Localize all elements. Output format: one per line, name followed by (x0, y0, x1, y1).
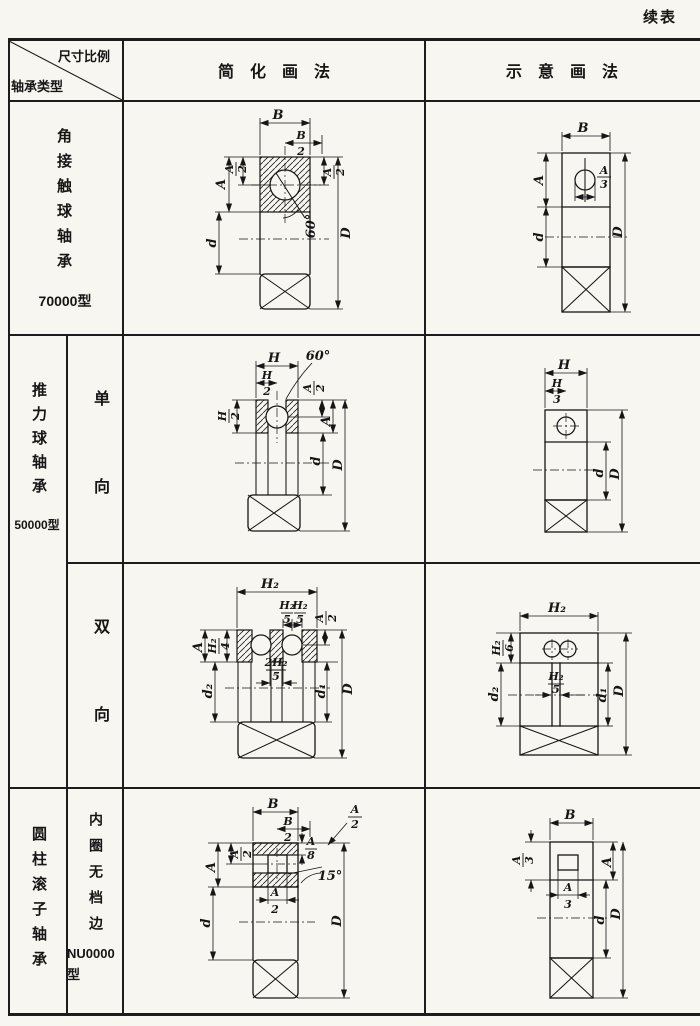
row2-sub-single-label: 单向 (87, 390, 111, 566)
dim-H26: H₂ 6 (490, 640, 516, 657)
dim-angle: 60° (304, 214, 319, 239)
dim-mid-num: 2H₂ (264, 656, 288, 669)
dim-A2: A 2 (301, 381, 327, 395)
dim-d: d (205, 238, 220, 247)
dim-A: A (214, 179, 229, 191)
row2-sub-double-label: 双向 (87, 618, 111, 794)
dim-B: B (564, 808, 576, 823)
row1-type-label: 角接触球轴承 (53, 128, 74, 278)
dim-A8-den: 8 (307, 849, 315, 862)
dim-B: B (267, 797, 279, 812)
row3-model-label: NU0000型 (67, 944, 123, 986)
subcolumn-divider (66, 335, 68, 1014)
dim-B2-den: 2 (296, 145, 305, 158)
cylindrical-roller-simplified-drawing: B B 2 A 8 A 2 15° A A 2 A 2 (125, 788, 425, 1014)
row2-type-label: 推力球轴承 (28, 382, 49, 502)
svg-text:H₂: H₂ (206, 638, 219, 654)
dim-d2: d₂ (201, 683, 216, 698)
dimensions: B A 3 A A 3 d D (510, 808, 628, 998)
ball-circle-2 (282, 635, 302, 655)
ball-circle-1 (251, 635, 271, 655)
dim-B2-num: B (282, 815, 292, 828)
dim-D: D (611, 226, 626, 239)
dim-D: D (608, 468, 623, 481)
svg-text:2: 2 (334, 168, 347, 177)
dim-A8-num: A (306, 835, 316, 848)
dim-D: D (609, 908, 624, 921)
dim-D: D (612, 685, 627, 698)
scanned-handbook-page: { "page": { "continued": "续表" }, "header… (0, 0, 700, 1026)
svg-text:H₂: H₂ (490, 640, 503, 656)
dim-H: H (267, 351, 281, 366)
dim-H25b-num: H₂ (291, 599, 307, 612)
dimensions: B A 3 A d D (532, 121, 631, 312)
column-header-simplified: 简化画法 (124, 58, 424, 82)
dim-d: d (532, 232, 547, 241)
dim-A3-bottom-num: A (563, 881, 573, 894)
svg-text:A: A (223, 164, 236, 174)
dim-A: A (532, 175, 547, 187)
dim-D: D (341, 683, 356, 696)
dim-A2-left: A 2 (228, 847, 254, 861)
dim-H2-top-den: 2 (262, 385, 271, 398)
type-column-divider (122, 38, 124, 1014)
dim-H3-num: H (551, 377, 563, 390)
roller-square (558, 855, 578, 870)
dim-A: A (319, 416, 334, 428)
svg-text:A: A (321, 167, 334, 177)
dim-A2-top-num: A (350, 803, 360, 816)
dim-angle: 15° (318, 869, 343, 884)
dim-D: D (339, 227, 354, 240)
dim-B2-den: 2 (283, 831, 292, 844)
dim-d1: d₁ (595, 688, 610, 703)
dim-A: A (204, 862, 219, 874)
dim-B: B (577, 121, 589, 136)
dim-A2-bottom-den: 2 (270, 903, 279, 916)
dim-H25-num: H₂ (547, 670, 563, 683)
dim-A: A (600, 857, 615, 869)
dim-angle: 60° (306, 349, 331, 364)
dimensions: H₂ H₂ 5 H₂ 5 A 2 A H₂ 4 2H₂ 5 (191, 577, 356, 758)
dim-H25a-den: 5 (283, 613, 291, 626)
column-header-schematic: 示意画法 (426, 58, 698, 82)
svg-text:A: A (313, 613, 326, 623)
dim-H25-den: 5 (552, 683, 560, 696)
dim-H2: H₂ (260, 577, 279, 592)
svg-text:A: A (510, 855, 523, 865)
dim-mid-den: 5 (272, 670, 280, 683)
dim-B: B (272, 108, 284, 123)
dim-d: d (199, 918, 214, 927)
dim-d: d (309, 456, 324, 465)
svg-text:A: A (301, 383, 314, 393)
dim-A2-bottom-num: A (270, 886, 280, 899)
dim-H2: H₂ (547, 601, 566, 616)
continued-table-label: 续表 (643, 6, 677, 27)
dim-A3-num: A (599, 164, 609, 177)
svg-text:2: 2 (229, 412, 242, 421)
svg-text:2: 2 (241, 850, 254, 859)
svg-text:A: A (228, 849, 241, 859)
corner-label-bottom: 轴承类型 (11, 76, 63, 95)
dim-D: D (330, 915, 345, 928)
dim-H: H (557, 358, 571, 373)
svg-text:6: 6 (503, 644, 516, 652)
dim-D: D (331, 459, 346, 472)
dim-B2-num: B (295, 129, 305, 142)
dim-A2-right: A 2 (321, 165, 347, 179)
dim-d: d (593, 915, 608, 924)
dim-d1: d₁ (314, 684, 329, 699)
dim-d2: d₂ (487, 686, 502, 701)
dim-A2-top-den: 2 (350, 818, 359, 831)
dim-A3-den: 3 (600, 178, 608, 191)
svg-text:3: 3 (523, 856, 536, 864)
angular-contact-simplified-drawing: B B 2 A A 2 A 2 60° d D (125, 102, 425, 335)
svg-text:2: 2 (236, 165, 249, 174)
thrust-double-simplified-drawing: H₂ H₂ 5 H₂ 5 A 2 A H₂ 4 2H₂ 5 (125, 563, 425, 788)
dim-H2-left: H 2 (216, 409, 242, 423)
dim-A3-bottom-den: 3 (564, 898, 572, 911)
svg-text:2: 2 (326, 614, 339, 623)
thrust-single-simplified-drawing: H H 2 H 2 60° A 2 A d D (125, 335, 425, 563)
row3-sub-label: 内圈无档边 (86, 812, 106, 942)
dim-A2-left: A 2 (223, 162, 249, 176)
dim-A3-left: A 3 (510, 853, 536, 867)
row2-model-label: 50000型 (8, 516, 66, 533)
dim-H3-den: 3 (553, 393, 561, 406)
dimensions: B B 2 A 8 A 2 15° A A 2 A 2 (199, 797, 362, 998)
thrust-double-schematic-drawing: H₂ H₂ 6 d₂ H₂ 5 d₁ D (425, 563, 695, 788)
dim-H25b-den: 5 (296, 613, 304, 626)
dim-d: d (592, 468, 607, 477)
row1-model-label: 70000型 (8, 291, 122, 311)
svg-text:H: H (216, 410, 229, 422)
bearing-section (239, 843, 315, 998)
dim-A: A (191, 642, 206, 654)
dimensions: H H 2 H 2 60° A 2 A d D (216, 349, 350, 531)
bearing-section (533, 410, 600, 532)
dimensions: H₂ H₂ 6 d₂ H₂ 5 d₁ D (487, 601, 632, 755)
row3-type-label: 圆柱滚子轴承 (28, 826, 49, 976)
corner-label-top: 尺寸比例 (58, 46, 110, 65)
thrust-single-schematic-drawing: H H 3 d D (425, 335, 695, 563)
dim-H2-top-num: H (261, 369, 273, 382)
dim-H24: H₂ 4 (206, 638, 232, 655)
angular-contact-schematic-drawing: B A 3 A d D (425, 102, 695, 335)
svg-text:4: 4 (219, 642, 232, 650)
cylindrical-roller-schematic-drawing: B A 3 A A 3 d D (425, 788, 695, 1014)
svg-text:2: 2 (314, 384, 327, 393)
